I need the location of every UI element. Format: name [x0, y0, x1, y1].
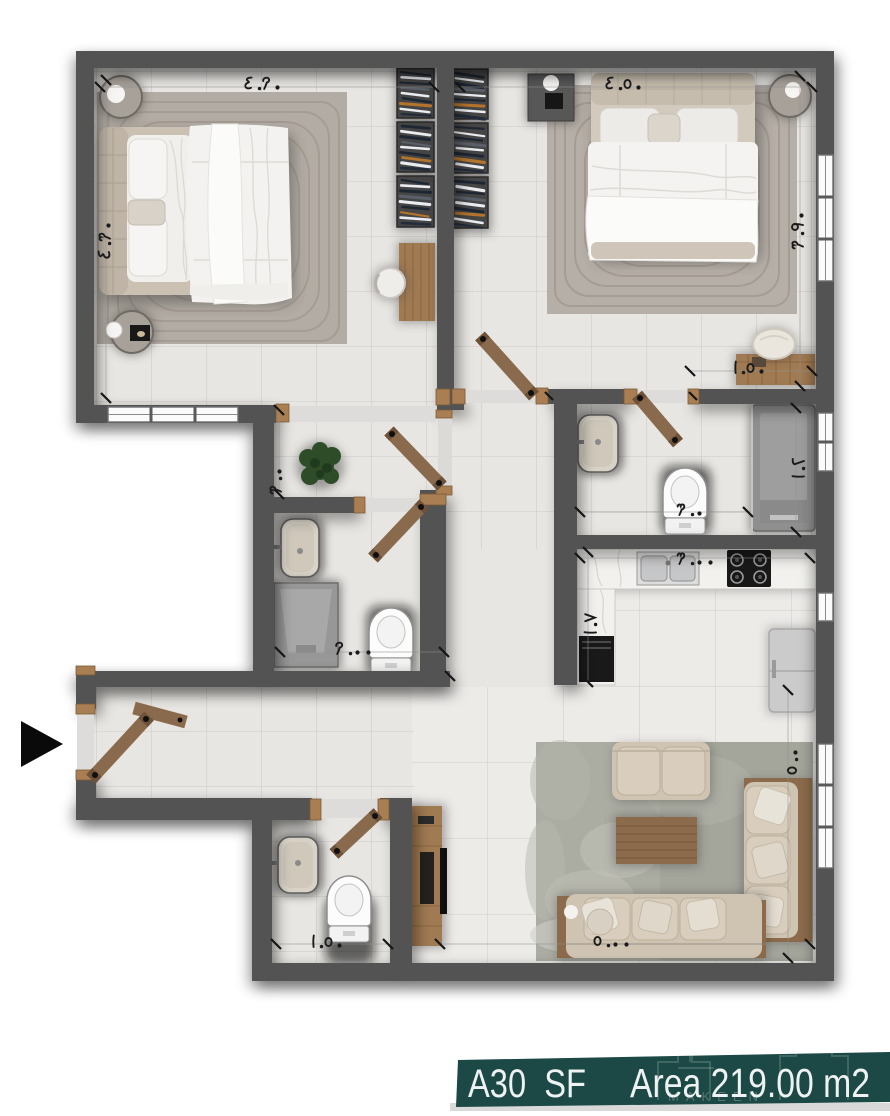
svg-text:A30 SF: A30 SF: [468, 1062, 586, 1106]
svg-text:Area 219.00 m2: Area 219.00 m2: [630, 1060, 870, 1106]
